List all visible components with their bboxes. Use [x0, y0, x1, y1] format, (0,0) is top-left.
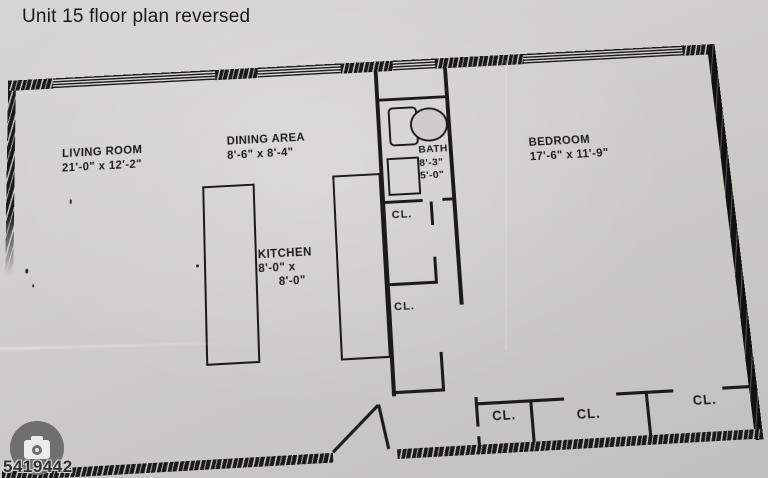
top-wall-hatch-segment — [435, 54, 524, 69]
bottom-exterior-wall — [397, 429, 763, 459]
closet-right-wall — [433, 257, 438, 284]
paper-crease — [505, 60, 507, 350]
ink-speck — [70, 199, 72, 204]
page-title: Unit 15 floor plan reversed — [22, 6, 250, 28]
bedroom-closet-wall — [478, 397, 564, 405]
room-label-dining-area: DINING AREA 8'-6" x 8'-4" — [227, 131, 306, 164]
bath-bedroom-wall — [443, 68, 464, 305]
bath-sink — [386, 157, 421, 196]
top-wall-hatch-segment — [340, 61, 393, 74]
ink-speck — [196, 264, 199, 267]
top-wall-window-segment — [258, 63, 341, 78]
floorplan-photo: Unit 15 floor plan reversed — [0, 0, 768, 478]
bath-compartment-divider — [379, 95, 445, 101]
closet-label: CL. — [576, 406, 601, 422]
room-dimensions: 21'-0" x 12'-2" — [62, 158, 143, 177]
room-dimensions: 8'-0" — [259, 273, 314, 290]
closet-right-wall — [430, 201, 435, 225]
top-wall-window-segment — [523, 46, 683, 64]
right-exterior-wall — [707, 44, 764, 440]
watermark-id: 5419442 — [3, 457, 73, 477]
bedroom-closet-partition — [645, 391, 653, 436]
room-name: BATH — [418, 143, 448, 157]
entry-door-leaf — [377, 404, 390, 449]
camera-icon — [31, 436, 43, 442]
room-label-bath: BATH 8'-3" 5'-0" — [418, 143, 450, 183]
room-dimensions: 5'-0" — [420, 168, 450, 183]
closet-label: CL. — [391, 208, 412, 221]
room-dimensions: 17'-6" x 11'-9" — [529, 147, 609, 166]
floor-plan-drawing: LIVING ROOM 21'-0" x 12'-2" DINING AREA … — [2, 44, 764, 478]
top-wall-hatch-segment — [215, 68, 258, 80]
left-exterior-wall — [5, 91, 16, 275]
top-wall-window-segment — [53, 70, 216, 89]
top-wall-window-segment — [392, 59, 435, 71]
top-wall-hatch-segment — [8, 78, 53, 91]
room-label-kitchen: KITCHEN 8'-0" x 8'-0" — [258, 245, 314, 290]
closet-label: CL. — [394, 300, 416, 313]
closet-divider-wall — [390, 281, 438, 287]
room-dimensions: 8'-6" x 8'-4" — [227, 145, 306, 164]
hall-closet-wall — [477, 436, 481, 445]
camera-icon — [35, 448, 39, 452]
kitchen-counter — [202, 184, 260, 366]
ink-speck — [25, 269, 28, 274]
ink-speck — [32, 284, 34, 287]
bedroom-closet-wall — [722, 385, 749, 390]
room-label-living-room: LIVING ROOM 21'-0" x 12'-2" — [62, 143, 143, 176]
closet-label: CL. — [492, 408, 517, 424]
room-label-bedroom: BEDROOM 17'-6" x 11'-9" — [528, 132, 609, 165]
bath-south-wall — [385, 199, 423, 204]
closet-bottom-wall — [396, 388, 445, 394]
bedroom-closet-partition — [529, 399, 536, 442]
entry-door-swing — [332, 404, 379, 453]
room-name: KITCHEN — [258, 245, 312, 262]
closet-label: CL. — [692, 392, 717, 408]
closet-right-wall — [440, 352, 446, 392]
